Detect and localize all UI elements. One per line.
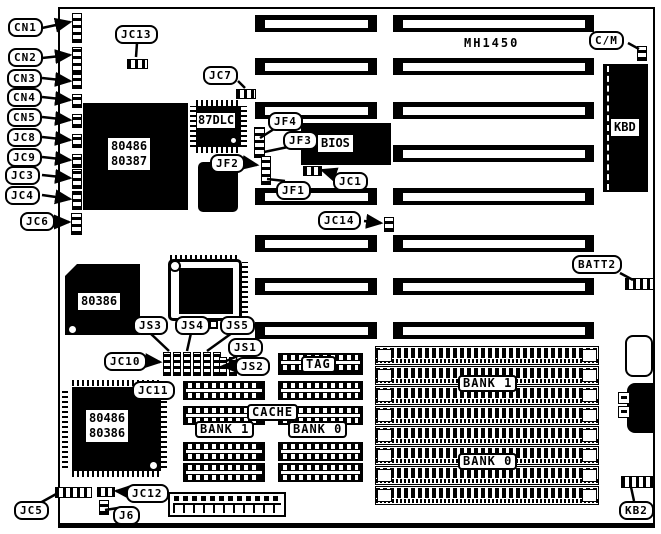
callout-jf2: JF2: [210, 154, 245, 173]
callout-kb2: KB2: [619, 501, 654, 520]
callout-j6: J6: [113, 506, 140, 525]
callout-js1: JS1: [228, 338, 263, 357]
callout-cn5: CN5: [7, 108, 42, 127]
callout-jc14: JC14: [318, 211, 361, 230]
callout-jc11: JC11: [132, 381, 175, 400]
callout-jc6: JC6: [20, 212, 55, 231]
callout-cn4: CN4: [7, 88, 42, 107]
callout-js4: JS4: [175, 316, 210, 335]
callout-jc5: JC5: [14, 501, 49, 520]
callout-cn2: CN2: [8, 48, 43, 67]
callout-batt2: BATT2: [572, 255, 622, 274]
callout-jc13: JC13: [115, 25, 158, 44]
callout-js3: JS3: [133, 316, 168, 335]
callout-jc7: JC7: [203, 66, 238, 85]
callout-cn3: CN3: [7, 69, 42, 88]
callout-cm: C/M: [589, 31, 624, 50]
callout-jc9: JC9: [7, 148, 42, 167]
callout-jf4: JF4: [268, 112, 303, 131]
callout-cn1: CN1: [8, 18, 43, 37]
callout-pointer-lines: [0, 0, 661, 534]
callout-jf1: JF1: [276, 181, 311, 200]
callout-jf3: JF3: [283, 131, 318, 150]
callout-js2: JS2: [235, 357, 270, 376]
motherboard-diagram: MH1450 80486 80387 87DLC BIOS KBD 80386: [0, 0, 661, 534]
callout-jc3: JC3: [5, 166, 40, 185]
callout-jc1: JC1: [333, 172, 368, 191]
callout-jc12: JC12: [126, 484, 169, 503]
callout-jc10: JC10: [104, 352, 147, 371]
callout-js5: JS5: [220, 316, 255, 335]
callout-jc8: JC8: [7, 128, 42, 147]
callout-jc4: JC4: [5, 186, 40, 205]
